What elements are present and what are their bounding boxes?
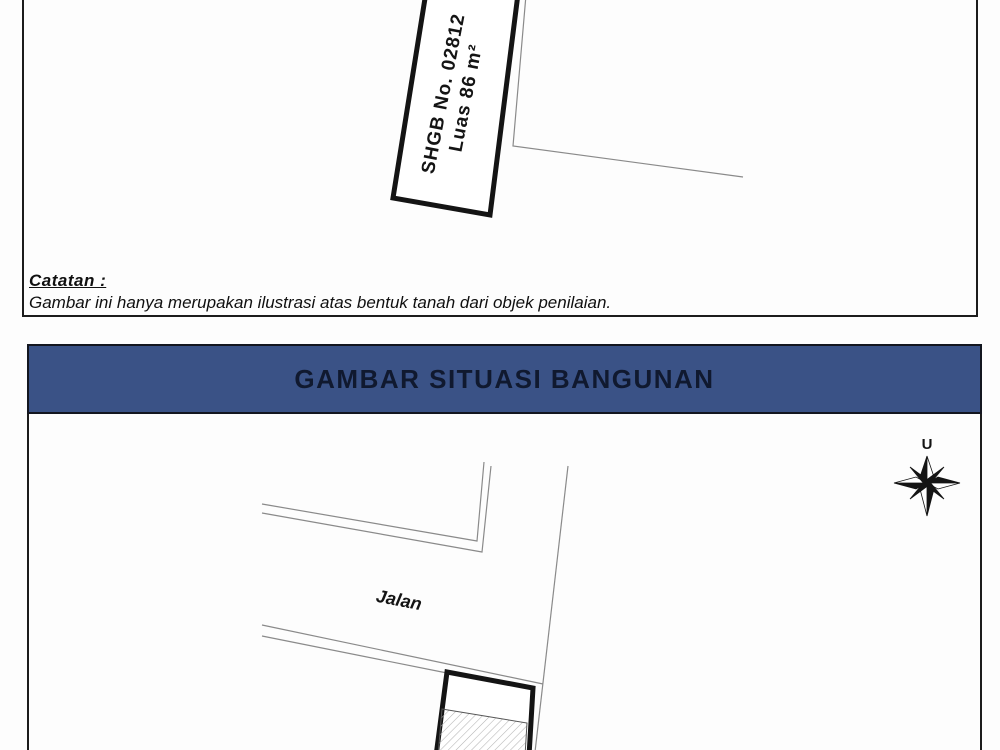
note-body: Gambar ini hanya merupakan ilustrasi ata…	[29, 292, 611, 313]
section-header-bar: GAMBAR SITUASI BANGUNAN	[27, 344, 982, 414]
note: Catatan : Gambar ini hanya merupakan ilu…	[29, 270, 611, 314]
document-page: GAMBAR SITUASI BANGUNAN SHGB No. 02812 L…	[0, 0, 1000, 750]
note-title: Catatan :	[29, 270, 611, 291]
section-title: GAMBAR SITUASI BANGUNAN	[294, 364, 714, 395]
